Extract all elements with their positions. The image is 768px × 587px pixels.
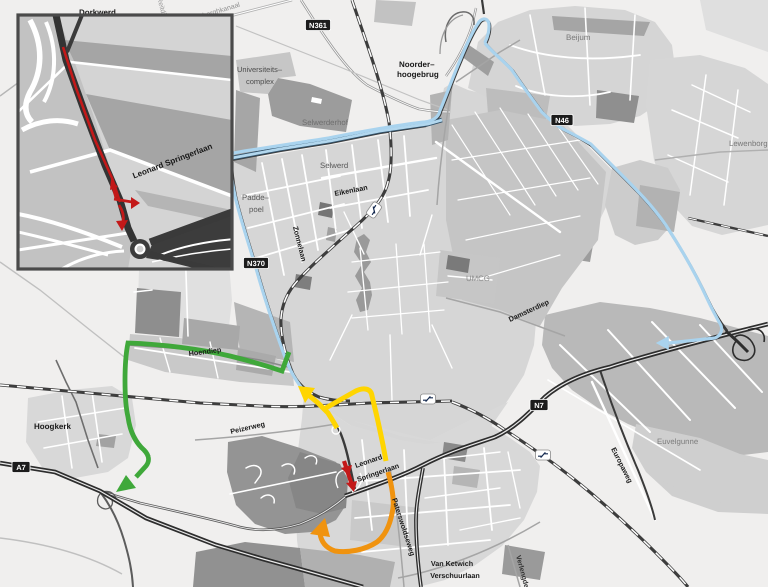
- svg-text:Selwerd: Selwerd: [320, 161, 348, 170]
- svg-text:N361: N361: [309, 21, 327, 30]
- svg-text:N46: N46: [555, 116, 569, 125]
- svg-text:Padde–: Padde–: [242, 193, 270, 202]
- svg-text:A7: A7: [16, 463, 26, 472]
- svg-text:Selwerderhof: Selwerderhof: [302, 118, 349, 127]
- svg-text:poel: poel: [249, 205, 264, 214]
- svg-text:Beijum: Beijum: [566, 33, 591, 42]
- svg-text:Hoogkerk: Hoogkerk: [34, 422, 71, 431]
- svg-text:N7: N7: [534, 401, 544, 410]
- svg-text:N370: N370: [247, 259, 265, 268]
- svg-text:Euvelgunne: Euvelgunne: [657, 437, 698, 446]
- svg-text:hoogebrug: hoogebrug: [397, 70, 439, 79]
- svg-text:Lewenborg: Lewenborg: [729, 139, 768, 148]
- svg-text:UMCG: UMCG: [466, 274, 490, 283]
- svg-text:Universiteits–: Universiteits–: [237, 65, 283, 74]
- svg-text:complex: complex: [246, 77, 274, 86]
- svg-text:Verschuurlaan: Verschuurlaan: [430, 571, 480, 580]
- svg-text:Noorder–: Noorder–: [399, 60, 435, 69]
- svg-text:Van Ketwich: Van Ketwich: [431, 559, 473, 568]
